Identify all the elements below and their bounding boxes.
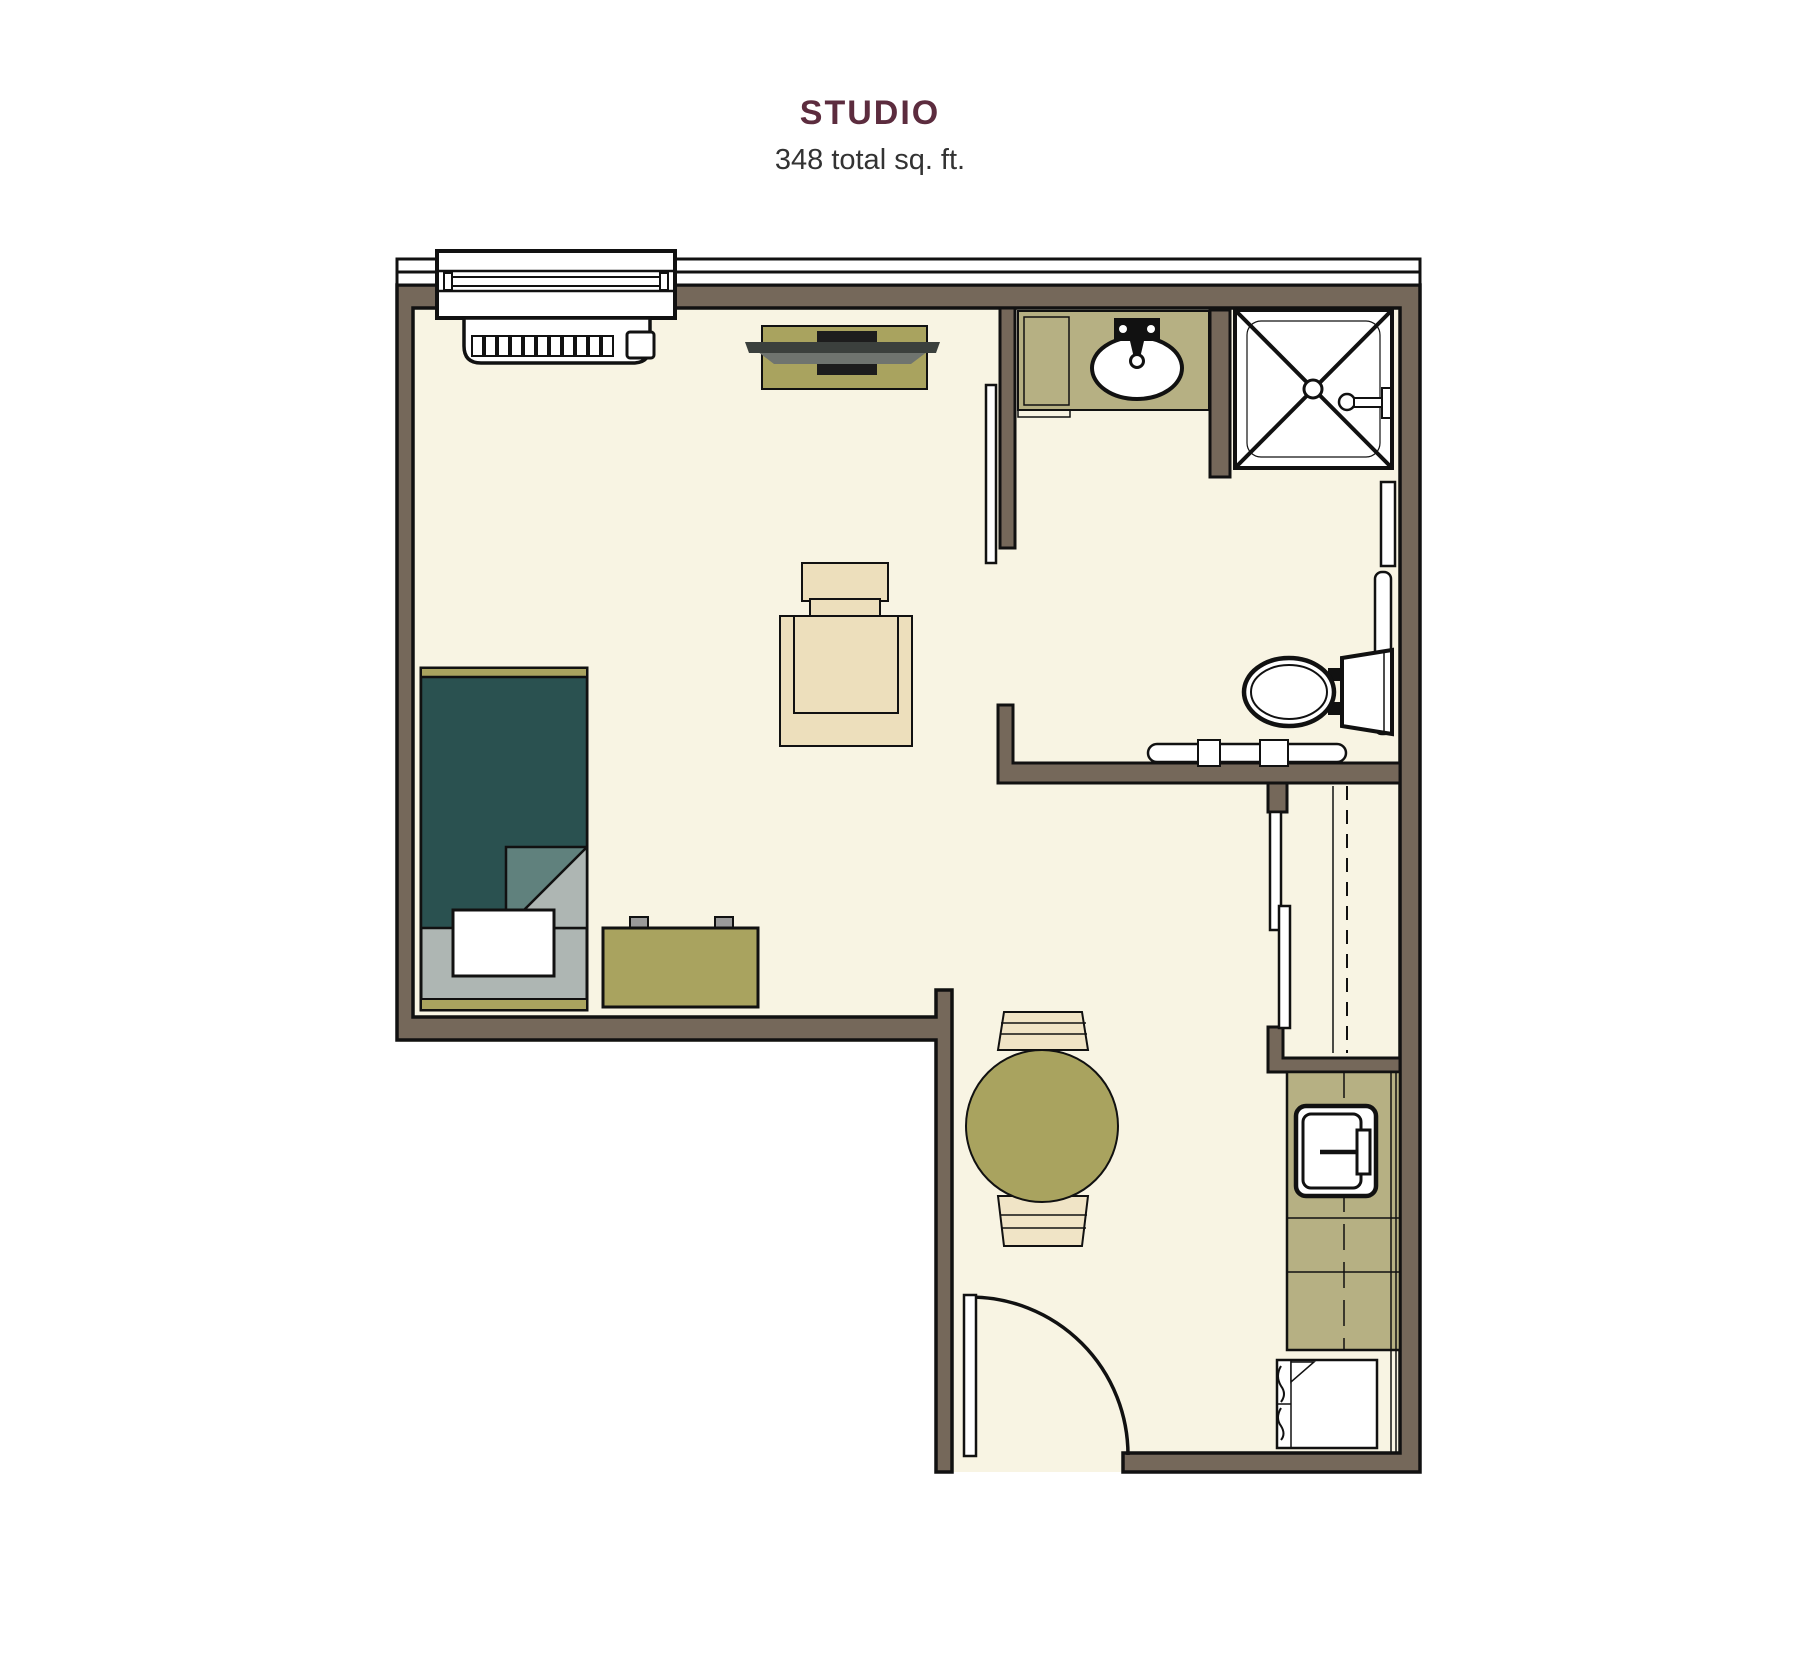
toilet-bowl xyxy=(1244,658,1334,726)
window-glass-end-left xyxy=(444,273,452,290)
dining-chair-bottom xyxy=(998,1196,1088,1246)
shower-wall-fitting xyxy=(1382,388,1391,418)
bed-pillow xyxy=(453,910,554,976)
armchair-headrest xyxy=(802,563,888,601)
wall-bathroom-left xyxy=(1000,308,1015,548)
floor-plan-page: STUDIO 348 total sq. ft. xyxy=(0,0,1817,1668)
shower-drain xyxy=(1304,380,1322,398)
closet-door-leaf-2 xyxy=(1279,906,1290,1028)
bed-footboard-strip xyxy=(421,999,587,1010)
shower xyxy=(1235,310,1392,468)
window-glass-end-right xyxy=(660,273,668,290)
tv-console xyxy=(745,326,940,389)
faucet-handle-right xyxy=(1147,325,1155,333)
grab-bar-mount-left xyxy=(1198,740,1220,766)
window-frame xyxy=(437,251,675,318)
toilet-grab-bar xyxy=(1148,740,1346,766)
bench xyxy=(603,917,758,1007)
wall-shower-pier xyxy=(1210,310,1230,477)
shower-handle xyxy=(1339,394,1355,410)
armchair-body xyxy=(780,616,912,746)
floor-plan-drawing xyxy=(0,0,1817,1668)
grab-bar-mount-right xyxy=(1260,740,1288,766)
dining-chair-top xyxy=(998,1012,1088,1050)
grab-bar-horizontal xyxy=(1148,744,1346,762)
window-unit xyxy=(437,251,675,363)
bathroom-vanity xyxy=(1018,311,1209,417)
bathroom-sliding-door xyxy=(986,385,996,563)
entry-door-leaf xyxy=(964,1295,976,1456)
dining-table xyxy=(966,1050,1118,1202)
sink-drain xyxy=(1131,355,1144,368)
refrigerator xyxy=(1277,1360,1377,1448)
wall-closet-stub-top xyxy=(1268,783,1287,812)
grab-bar-upper xyxy=(1381,482,1395,566)
faucet-handle-left xyxy=(1119,325,1127,333)
kitchen-faucet-body xyxy=(1357,1130,1370,1174)
tv-screen-top xyxy=(745,342,940,353)
bench-top xyxy=(603,928,758,1007)
bed xyxy=(421,668,587,1010)
heater-control xyxy=(627,332,654,358)
